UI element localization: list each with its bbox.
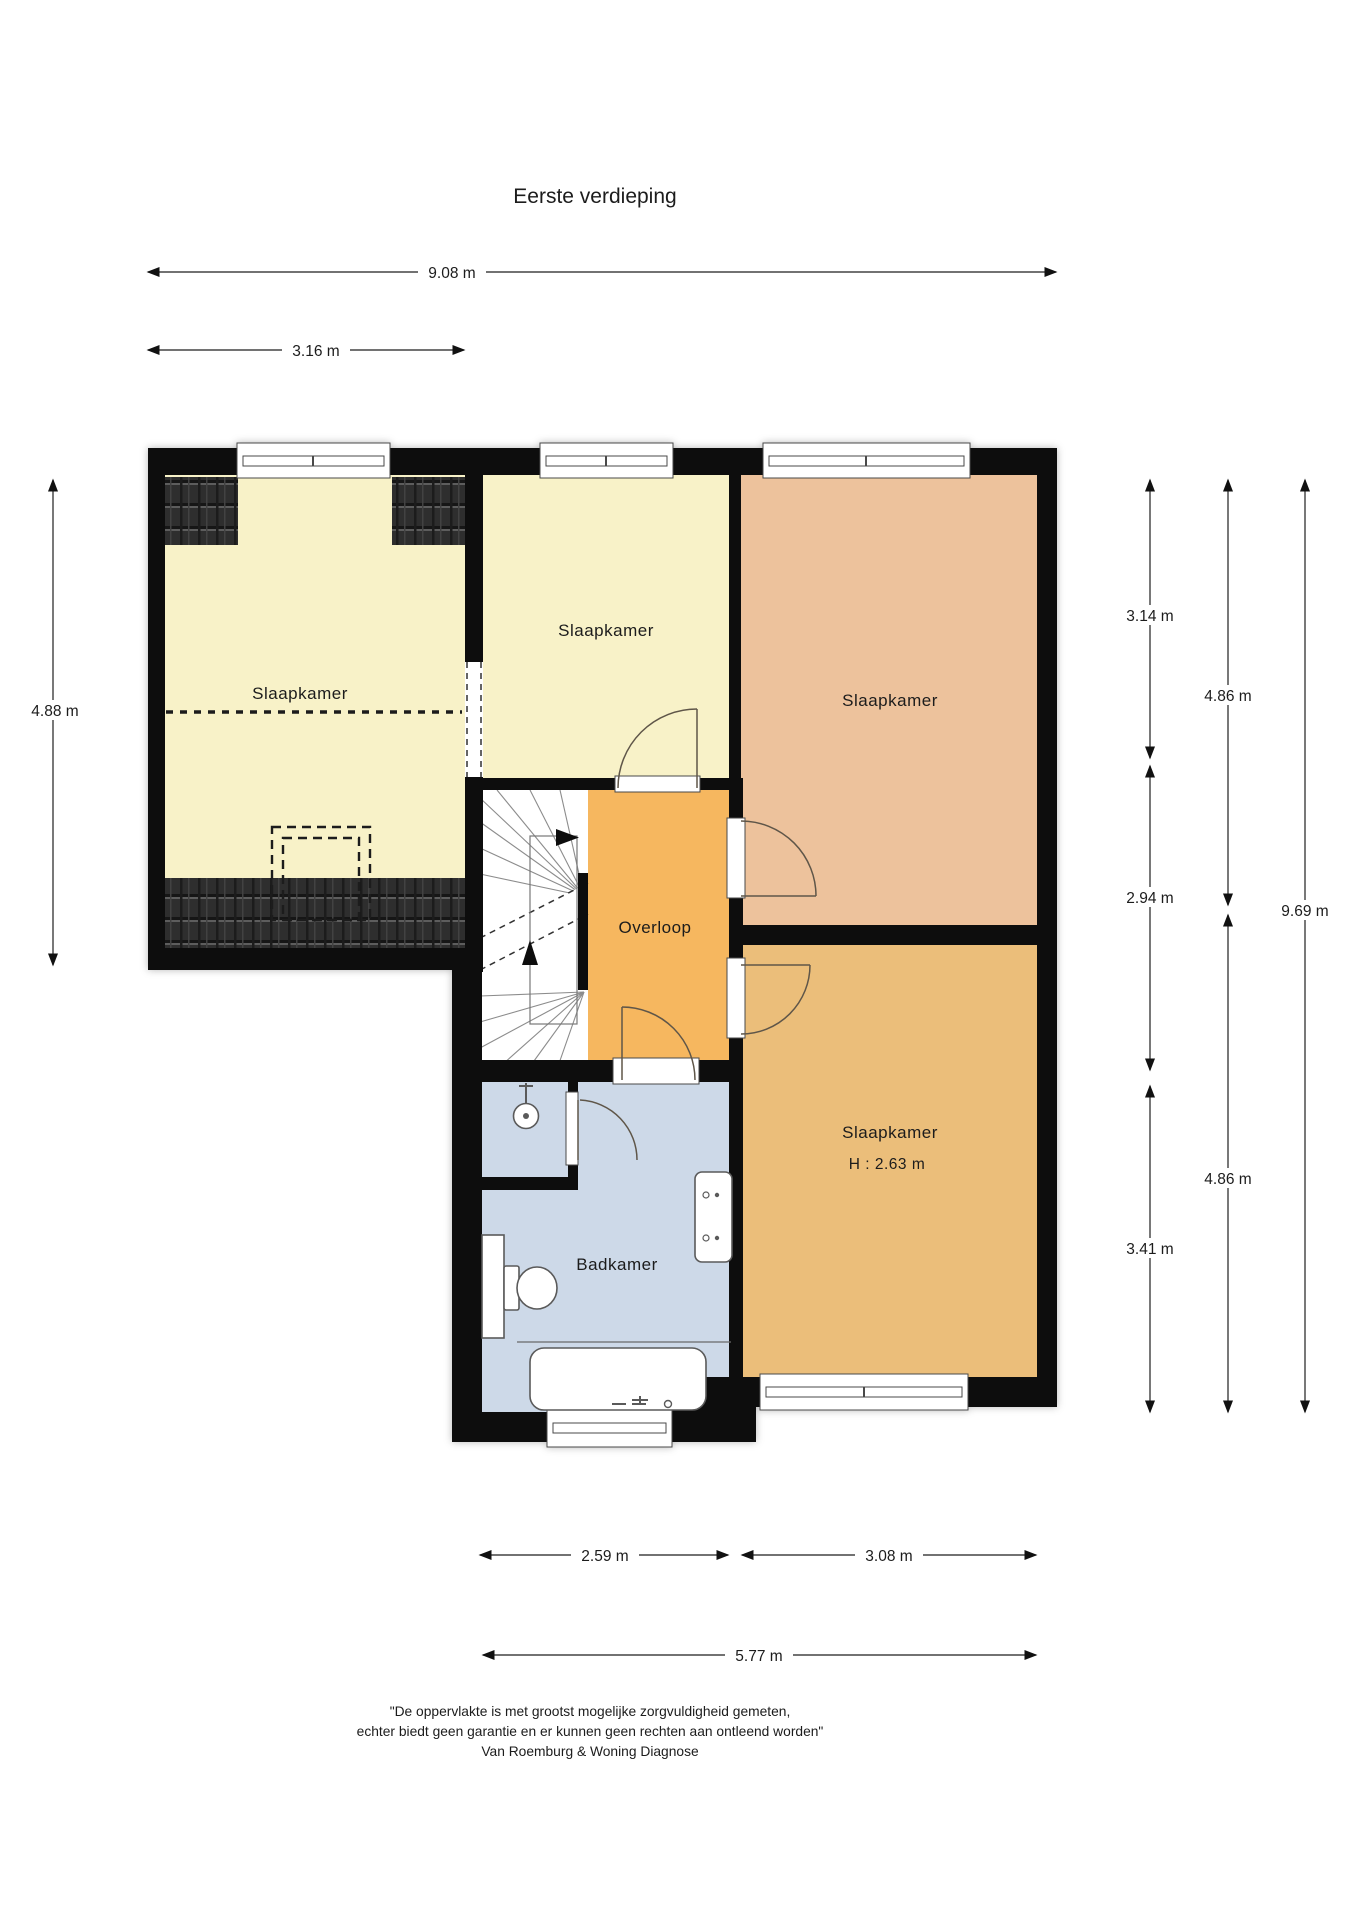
roof-slope-patch	[392, 477, 465, 545]
roof-slope-patch	[163, 878, 465, 948]
room-label-overloop: Overloop	[619, 918, 692, 937]
window-top-mid	[540, 443, 673, 478]
dim-right-outer-bottom: 4.86 m	[1204, 1171, 1251, 1188]
dim-right-inner-mid: 2.94 m	[1126, 890, 1173, 907]
dim-bottom-left: 2.59 m	[581, 1548, 628, 1565]
dim-bottom-right: 3.08 m	[865, 1548, 912, 1565]
room-label-bedroom-left: Slaapkamer	[252, 684, 348, 703]
room-label-bathroom: Badkamer	[576, 1255, 657, 1274]
floorplan-canvas: Eerste verdieping	[0, 0, 1358, 1920]
window-bottom-bedroom	[760, 1374, 968, 1410]
disclaimer-line-3: Van Roemburg & Woning Diagnose	[481, 1744, 699, 1759]
dim-right-inner-bottom: 3.41 m	[1126, 1241, 1173, 1258]
bathtub-icon	[517, 1342, 731, 1410]
room-height-note: H : 2.63 m	[849, 1156, 926, 1173]
disclaimer-line-2: echter biedt geen garantie en er kunnen …	[357, 1724, 824, 1739]
dim-right-inner-top: 3.14 m	[1126, 608, 1173, 625]
roof-slope-patch	[163, 477, 238, 545]
disclaimer: "De oppervlakte is met grootst mogelijke…	[357, 1704, 824, 1759]
room-label-bedroom-bottom: Slaapkamer	[842, 1123, 938, 1142]
dim-top-total: 9.08 m	[428, 265, 475, 282]
washbasin-icon	[695, 1172, 732, 1262]
dim-bottom-total: 5.77 m	[735, 1648, 782, 1665]
dim-right-total: 9.69 m	[1281, 903, 1328, 920]
wall-opening-dashed	[465, 662, 483, 777]
window-top-right	[763, 443, 970, 478]
toilet-partition	[482, 1235, 504, 1338]
dim-top-left: 3.16 m	[292, 343, 339, 360]
disclaimer-line-1: "De oppervlakte is met grootst mogelijke…	[390, 1704, 791, 1719]
floorplan-page: Eerste verdieping	[0, 0, 1358, 1920]
window-bottom-bathroom	[547, 1409, 672, 1447]
room-label-bedroom-right: Slaapkamer	[842, 691, 938, 710]
window-top-left	[237, 443, 390, 478]
floorplan: Slaapkamer Slaapkamer Slaapkamer Slaapka…	[148, 443, 1057, 1447]
page-title: Eerste verdieping	[513, 185, 676, 208]
dim-right-outer-top: 4.86 m	[1204, 688, 1251, 705]
dim-left-height: 4.88 m	[31, 703, 78, 720]
room-label-bedroom-mid: Slaapkamer	[558, 621, 654, 640]
toilet-icon	[504, 1266, 557, 1310]
